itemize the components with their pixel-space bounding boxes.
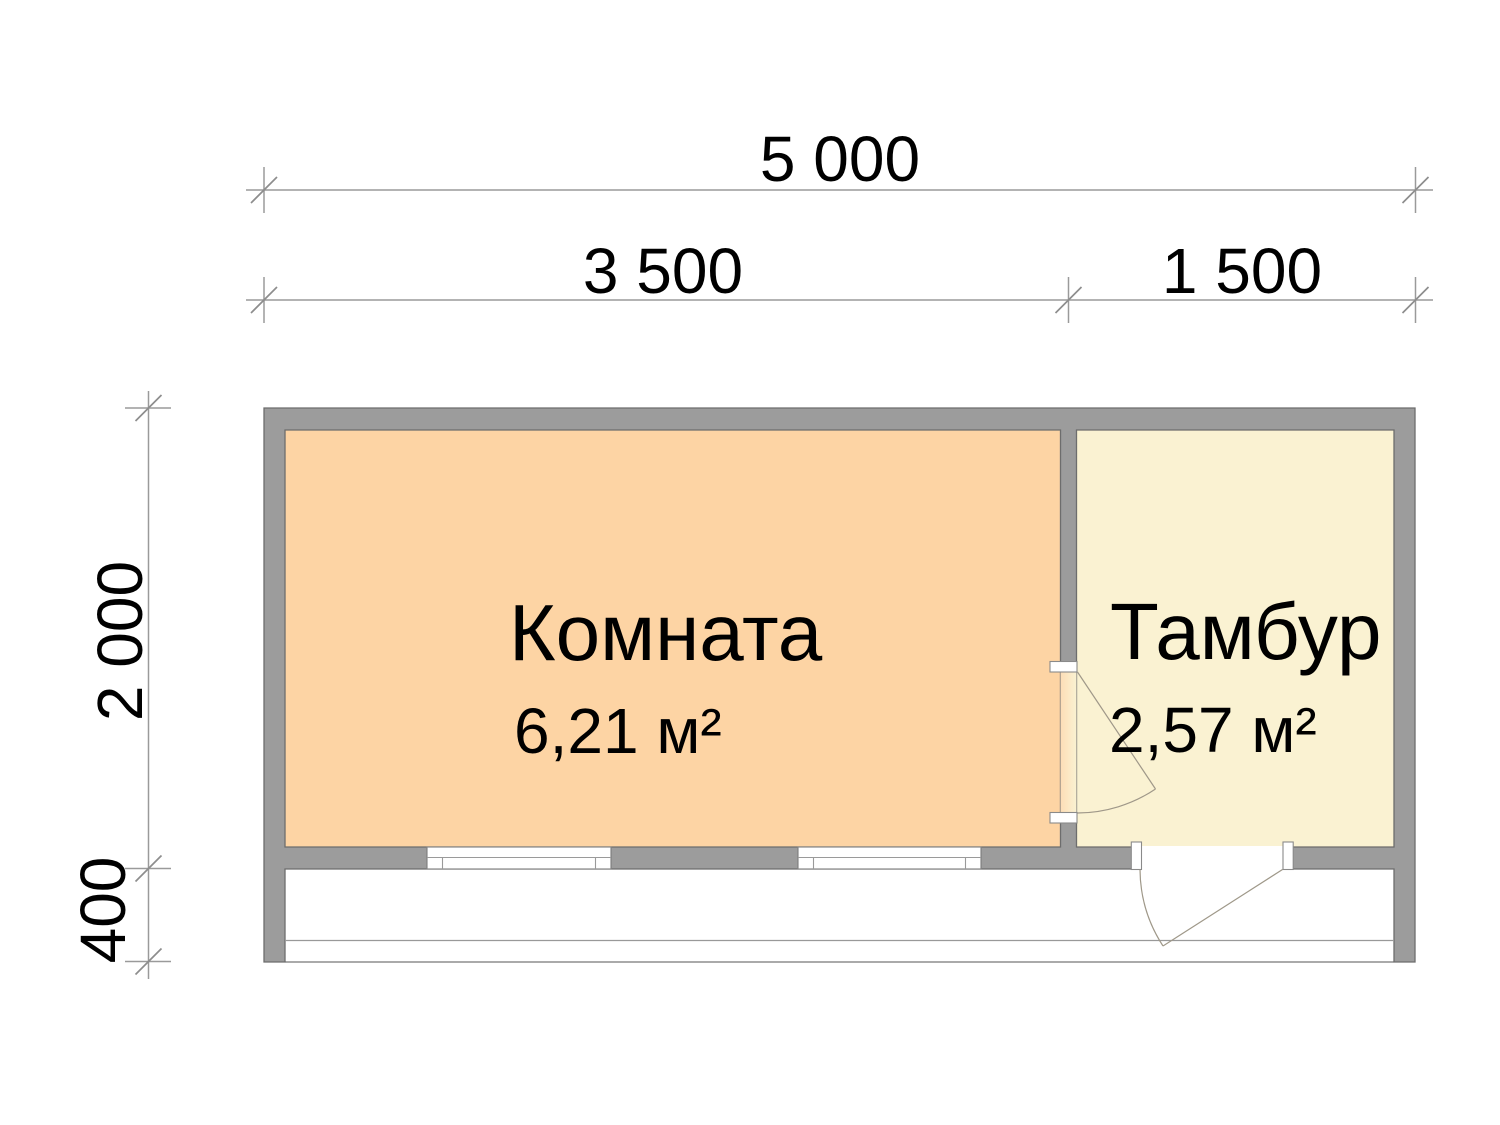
svg-text:1 500: 1 500 [1162, 235, 1322, 307]
svg-text:Комната: Комната [509, 588, 823, 677]
svg-text:400: 400 [67, 857, 139, 964]
svg-text:Тамбур: Тамбур [1110, 587, 1382, 676]
svg-text:2,57 м²: 2,57 м² [1109, 694, 1317, 766]
svg-text:2 000: 2 000 [84, 561, 156, 721]
svg-text:6,21 м²: 6,21 м² [514, 695, 722, 767]
svg-text:5 000: 5 000 [760, 123, 920, 195]
svg-text:3 500: 3 500 [583, 235, 743, 307]
